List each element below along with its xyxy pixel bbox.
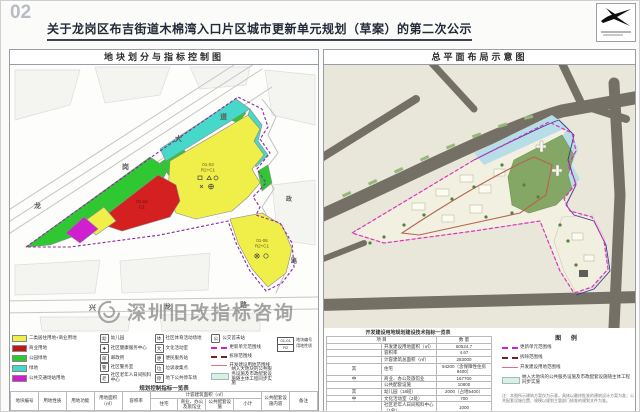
land-use-swatch	[12, 365, 27, 372]
land-use-swatch	[12, 345, 27, 352]
group-cell	[327, 402, 382, 412]
column-subheader: 商业、办公及旅馆业	[178, 398, 206, 410]
column-header: 地块编号	[11, 392, 39, 411]
table-row: 公共配套设施10800	[327, 382, 492, 389]
legend-lines-column: 公公交首末站更新单元范围线拆除范围线开发建设用地范围线纳入大地块的公共服务设施及…	[211, 334, 277, 383]
page-number: 02	[10, 2, 31, 24]
item-cell: 计容建筑总面积（㎡）	[382, 356, 437, 363]
legend-item: 绿地	[12, 364, 98, 373]
facility-icon: 体	[155, 334, 164, 343]
value-cell: 283000	[437, 356, 492, 363]
legend-facilities-column-b: 体社区体育活动场地文文化活动室便便民服务站垃垃圾收集点停地下公共停车场	[155, 334, 212, 383]
plan-note: 注：本图所示建筑方案仅为示意，具体以最终批准的建筑设计方案为准；公共配套设施位置…	[502, 393, 634, 404]
legend-label: 便民服务站	[166, 356, 189, 361]
plot-indicator-table: 地块编号用地性质用地功能用地面积（㎡）容积率计容建筑面积（㎡）公共配套设施内容备…	[10, 391, 318, 412]
legend-item: 文文化活动室	[155, 344, 210, 353]
right-panel-title: 总平面布局示意图	[324, 50, 635, 65]
legend-label: 纳入大地块的公共服务设施及市政配套设施随主体工程同步实施	[522, 375, 634, 385]
tech-indicator-table-wrap: 项 目数 量开发建设用地面积（㎡）60524.7容积率4.67计容建筑总面积（㎡…	[326, 336, 492, 412]
legend-label: 社区警务室	[111, 365, 134, 370]
legend-label: 社区体育活动场地	[166, 336, 202, 341]
legend-label: 社区健康服务中心	[111, 346, 147, 351]
facility-icon: 文	[155, 344, 164, 353]
value-cell: 2000（占地5400）	[437, 389, 492, 396]
right-panel-bottom: 开发建设用地规划建设技术指标一览表 项 目数 量开发建设用地面积（㎡）60524…	[324, 327, 635, 412]
facility-icon: 便	[155, 354, 164, 363]
plot-use: R2+C1	[201, 168, 216, 173]
legend-item: 二类居住用地+商业用地	[12, 334, 98, 343]
right-legend-title: 图 例	[502, 333, 634, 342]
table-header-row: 地块编号用地性质用地功能用地面积（㎡）容积率计容建筑面积（㎡）公共配套设施内容备…	[11, 392, 318, 399]
legend-line-swatch	[502, 357, 518, 359]
column-header: 计容建筑面积（㎡）	[150, 392, 262, 399]
item-cell: 容积率	[382, 350, 437, 357]
legend-label: 幼儿园	[111, 336, 125, 341]
legend-label: 垃圾收集点	[166, 366, 189, 371]
road-label-char: 兴	[89, 303, 96, 312]
legend-item: 体社区体育活动场地	[155, 334, 210, 343]
plot-code-sample: 01-01 R2	[277, 337, 294, 352]
table-header-row: 项 目数 量	[327, 337, 492, 344]
group-cell	[327, 343, 382, 350]
legend-line-swatch	[211, 347, 227, 349]
table-row: 社区老年人日间照料中心（1处）1000	[327, 402, 492, 412]
plot-code: 01-04	[136, 199, 148, 204]
legend-line-swatch	[211, 356, 227, 358]
facility-icon: 幼	[100, 334, 109, 343]
public-notice-page: 02 关于龙岗区布吉街道木棉湾入口片区城市更新单元规划（草案）的第二次公示 地块…	[0, 0, 640, 412]
legend-item: 垃垃圾收集点	[155, 364, 210, 373]
legend-item: 公园绿地	[12, 354, 98, 363]
land-use-swatch	[12, 375, 27, 382]
legend-line-swatch	[502, 347, 518, 349]
plot-code: 01-03	[202, 162, 214, 167]
column-header: 公共配套设施内容	[262, 392, 290, 411]
legend-label: 拆除范围线	[520, 355, 543, 360]
master-plan-map	[324, 65, 635, 328]
legend-item: 纳入大地块的公共服务设施及市政配套设施随主体工程同步实施	[502, 375, 634, 385]
legend-item: 公共交通场站用地	[12, 374, 98, 383]
facility-icon: 邮	[100, 354, 109, 363]
watermark-text: 深圳旧改指标咨询	[127, 298, 295, 325]
logo-caption-line	[603, 34, 623, 36]
column-header: 用地功能	[66, 392, 94, 411]
legend-label: 开发建设用地范围线	[520, 365, 561, 370]
panel-plot-control-map: 地块划分与指标控制图	[9, 49, 319, 412]
item-cell: 开发建设用地面积（㎡）	[382, 343, 437, 350]
legend-label: 文化活动室	[166, 346, 189, 351]
left-panel-title: 地块划分与指标控制图	[10, 50, 318, 65]
legend-label: 商业用地	[29, 346, 47, 351]
table-row: 容积率4.67	[327, 350, 492, 357]
item-cell: 商业、办公及旅馆业	[382, 375, 437, 382]
tech-indicator-table: 项 目数 量开发建设用地面积（㎡）60524.7容积率4.67计容建筑总面积（㎡…	[326, 336, 492, 412]
road-label-char: 道	[220, 112, 227, 121]
legend-item: 便便民服务站	[155, 354, 210, 363]
item-cell: 公共配套设施	[382, 382, 437, 389]
legend-item: 警社区警务室	[100, 363, 153, 372]
legend-label: 更新单元范围线	[229, 345, 261, 350]
legend-line-swatch	[211, 373, 229, 380]
group-cell: 中	[327, 375, 382, 382]
value-cell: 167700	[437, 375, 492, 382]
legend-facilities-column-a: 幼幼儿园✚社区健康服务中心邮邮政所警社区警务室老社区老年人日间照料中心	[100, 334, 155, 383]
road-label-char: 龙	[33, 201, 41, 210]
road-label-char: 政	[286, 195, 293, 203]
legend-item: 邮邮政所	[100, 354, 153, 363]
swallow-logo-icon	[599, 6, 633, 30]
item-cell: 幼儿园（18班）	[382, 389, 437, 396]
facility-icon: ✚	[100, 344, 109, 353]
item-cell: 社区老年人日间照料中心（1处）	[382, 402, 437, 412]
legend-label: 公共交通场站用地	[29, 376, 65, 381]
right-table-title: 开发建设用地规划建设技术指标一览表	[324, 329, 492, 336]
group-cell	[327, 382, 382, 389]
table-row: 中文化活动室（2处）700	[327, 395, 492, 402]
column-header: 容积率	[122, 392, 150, 411]
item-cell: 文化活动室（2处）	[382, 395, 437, 402]
land-use-swatch	[12, 355, 27, 362]
legend-label: 邮政所	[111, 356, 125, 361]
plot-code-top: 01-01	[278, 338, 293, 345]
bus-terminus-icon: 公	[211, 334, 220, 343]
legend-line-swatch	[502, 377, 520, 384]
legend-label: 绿地	[29, 366, 38, 371]
column-subheader: 小计	[234, 398, 262, 410]
publisher-logo	[596, 3, 636, 42]
page-title: 关于龙岗区布吉街道木棉湾入口片区城市更新单元规划（草案）的第二次公示	[47, 20, 472, 41]
column-header: 用地面积（㎡）	[94, 392, 122, 411]
item-cell: 住宅	[382, 363, 437, 375]
group-cell	[327, 350, 382, 357]
master-plan-map-svg	[324, 65, 635, 328]
value-cell: 1000	[437, 402, 492, 412]
road-label-char: 大	[175, 134, 182, 143]
legend-label: 二类居住用地+商业用地	[29, 336, 77, 341]
table-row: 其幼儿园（18班）2000（占地5400）	[327, 389, 492, 396]
legend-label: 公交首末站	[222, 336, 245, 341]
column-header: 项 目	[327, 337, 437, 344]
legend-plot-code-box: 01-01 R2 地块编号 用地性质	[277, 334, 317, 383]
legend-label: 地下公共停车场	[166, 376, 198, 381]
plot-indicator-table-wrap: 地块编号用地性质用地功能用地面积（㎡）容积率计容建筑面积（㎡）公共配套设施内容备…	[10, 391, 318, 412]
column-header: 用地性质	[38, 392, 66, 411]
land-use-swatch	[12, 335, 27, 342]
table-row: 其住宅94200（含保障性住房9400）	[327, 363, 492, 375]
value-cell: 4.67	[437, 350, 492, 357]
legend-item: 公公交首末站	[211, 334, 275, 343]
facility-icon: 老	[100, 374, 109, 383]
table-row: 计容建筑总面积（㎡）283000	[327, 356, 492, 363]
value-cell: 94200（含保障性住房9400）	[437, 363, 492, 375]
legend-label: 公园绿地	[29, 356, 47, 361]
legend-item: ✚社区健康服务中心	[100, 344, 153, 353]
watermark-swirl-icon	[96, 299, 122, 325]
legend-land-use-column: 二类居住用地+商业用地商业用地公园绿地绿地公共交通场站用地	[12, 334, 100, 383]
legend-line-swatch	[211, 365, 227, 366]
table-row: 中商业、办公及旅馆业167700	[327, 375, 492, 382]
group-cell: 其	[327, 389, 382, 396]
plot-use: C1	[139, 205, 145, 210]
road-label-char: 岗	[122, 162, 129, 171]
legend-label: 拆除范围线	[229, 354, 252, 359]
legend-item: 商业用地	[12, 344, 98, 353]
watermark: 深圳旧改指标咨询	[96, 298, 295, 325]
plot-use: R2+C1	[255, 244, 270, 249]
legend-item: 停地下公共停车场	[155, 374, 210, 383]
legend-item: 老社区老年人日间照料中心	[100, 373, 153, 383]
column-subheader: 住宅	[150, 398, 178, 410]
plot-control-map: 龙 岗 大 道 兴 龙 路 政 路 01-03 R2+C1 01-06	[10, 65, 318, 333]
plot-code: 01-06	[256, 238, 268, 243]
legend-label: 更新单元范围线	[520, 345, 552, 350]
column-subheader: 公共配套设施	[206, 398, 234, 410]
facility-icon: 警	[100, 363, 109, 372]
value-cell: 60524.7	[437, 343, 492, 350]
value-cell: 700	[437, 395, 492, 402]
column-header: 备注	[290, 392, 318, 411]
legend-item: 纳入大地块的公共服务设施及市政配套设施随主体工程同步实施	[211, 370, 275, 383]
value-cell: 10800	[437, 382, 492, 389]
panel-master-plan: 总平面布局示意图	[323, 49, 636, 412]
group-cell: 中	[327, 395, 382, 402]
facility-icon: 停	[155, 374, 164, 383]
left-legend: 二类居住用地+商业用地商业用地公园绿地绿地公共交通场站用地 幼幼儿园✚社区健康服…	[10, 332, 318, 383]
legend-item: 拆除范围线	[211, 352, 275, 361]
plot-code-bottom: R2	[278, 345, 293, 351]
road-label-char: 路	[291, 257, 298, 265]
legend-item: 幼幼儿园	[100, 334, 153, 343]
group-cell: 其	[327, 363, 382, 375]
legend-label: 社区老年人日间照料中心	[111, 373, 153, 383]
group-cell	[327, 356, 382, 363]
table-row: 开发建设用地面积（㎡）60524.7	[327, 343, 492, 350]
legend-item: 更新单元范围线	[211, 343, 275, 352]
right-legend: 图 例 更新单元范围线拆除范围线开发建设用地范围线纳入大地块的公共服务设施及市政…	[502, 333, 634, 385]
plot-code-label-bottom: 用地性质	[296, 343, 312, 349]
facility-icon: 垃	[155, 364, 164, 373]
column-header: 数 量	[437, 337, 492, 344]
legend-line-swatch	[502, 367, 518, 368]
logo-caption-line	[601, 31, 631, 33]
plot-control-map-svg: 龙 岗 大 道 兴 龙 路 政 路 01-03 R2+C1 01-06	[10, 65, 318, 333]
